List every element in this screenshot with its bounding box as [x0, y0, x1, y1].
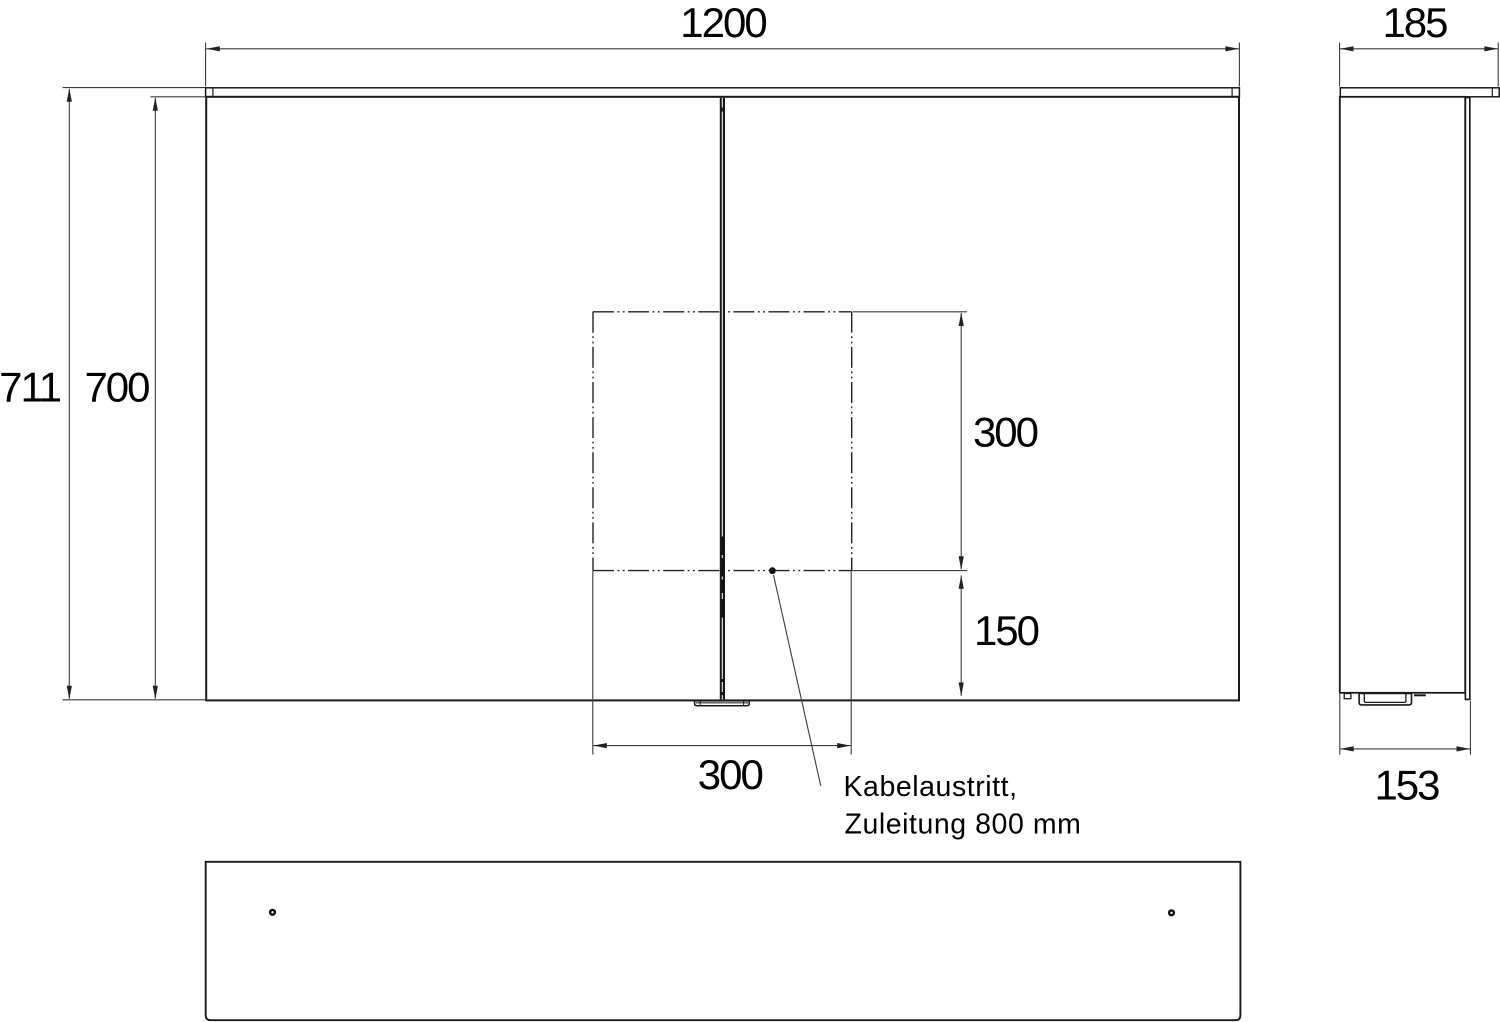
svg-text:711: 711: [0, 364, 61, 411]
svg-text:1200: 1200: [680, 0, 766, 46]
svg-text:700: 700: [84, 364, 149, 411]
svg-text:150: 150: [974, 607, 1039, 654]
svg-text:185: 185: [1382, 0, 1447, 46]
svg-text:300: 300: [973, 408, 1038, 455]
svg-text:300: 300: [698, 751, 763, 798]
svg-text:153: 153: [1374, 762, 1439, 809]
svg-text:Zuleitung 800 mm: Zuleitung 800 mm: [845, 808, 1082, 840]
svg-text:Kabelaustritt,: Kabelaustritt,: [844, 771, 1018, 803]
